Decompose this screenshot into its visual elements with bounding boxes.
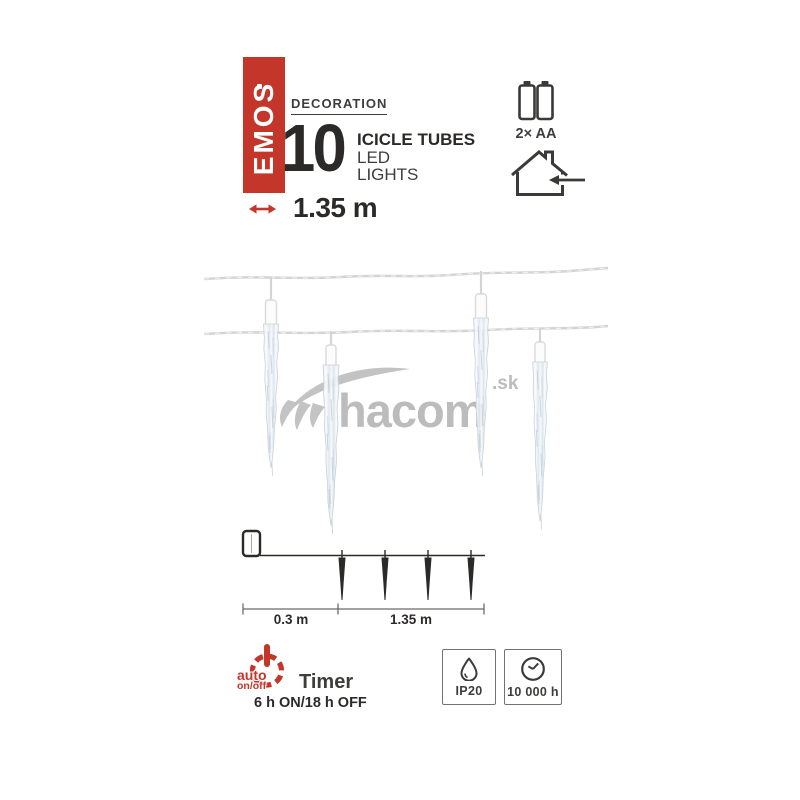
product-quantity: 10	[281, 121, 344, 178]
lead-length-label: 0.3 m	[255, 612, 327, 627]
ip-rating-box: IP20	[442, 649, 496, 705]
layout-diagram	[233, 524, 503, 624]
icicle-tube	[533, 362, 548, 529]
timer-onoff-text: on/off	[237, 681, 267, 692]
emos-logo-banner: EMOS	[243, 57, 285, 193]
icicle-tube	[473, 318, 488, 476]
product-title: ICICLE TUBES	[357, 131, 475, 149]
emos-logo-text: EMOS	[248, 80, 280, 174]
aa-batteries-icon	[516, 80, 556, 124]
product-name-block: ICICLE TUBES LED LIGHTS	[357, 131, 475, 184]
timer-auto-label: auto on/off	[237, 670, 267, 692]
timer-label: Timer	[299, 671, 353, 694]
icicle-spikes	[339, 550, 474, 600]
double-arrow-icon	[249, 200, 276, 218]
product-length: 1.35 m	[293, 192, 377, 224]
timer-schedule: 6 h ON/18 h OFF	[254, 695, 367, 711]
product-subtitle-led: LED	[357, 149, 475, 167]
clock-icon	[520, 656, 546, 682]
house-arrow-in-icon	[509, 147, 589, 201]
logo-trademark-dot	[257, 84, 262, 89]
lifetime-label: 10 000 h	[507, 685, 559, 699]
ip-rating-label: IP20	[456, 684, 483, 698]
icicle-tubes	[200, 250, 615, 540]
icicle-tube	[263, 324, 278, 476]
battery-count-label: 2× AA	[510, 126, 562, 142]
product-subtitle-lights: LIGHTS	[357, 166, 475, 184]
icicle-tube	[323, 365, 339, 534]
water-drop-icon	[459, 657, 479, 681]
lifetime-box: 10 000 h	[504, 649, 562, 705]
lit-length-label: 1.35 m	[375, 612, 447, 627]
product-card: EMOS DECORATION 10 ICICLE TUBES LED LIGH…	[0, 0, 800, 800]
